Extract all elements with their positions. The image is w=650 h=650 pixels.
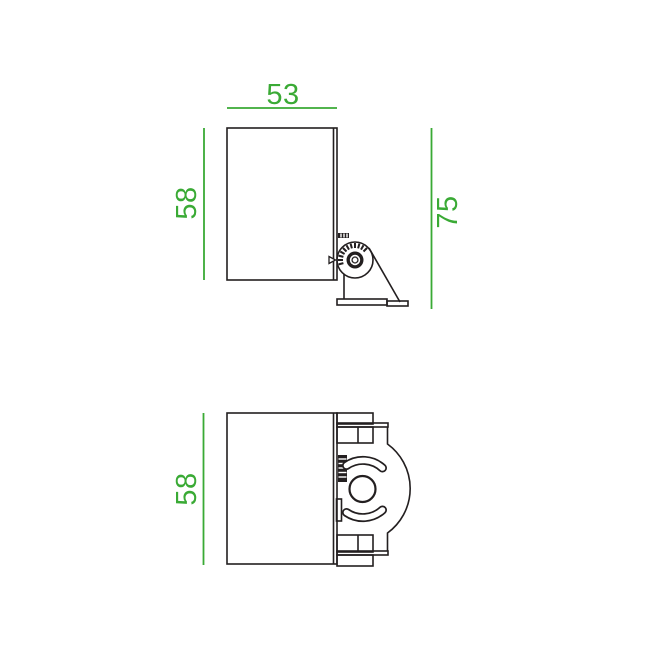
base-plate (337, 299, 387, 305)
width-dimension-label: 53 (266, 79, 299, 111)
bottom-tab-lower (337, 555, 373, 566)
fixture-body-outline (227, 413, 337, 564)
technical-drawing-page: 53 58 75 (0, 0, 650, 650)
bracket-slant-edge (369, 248, 400, 302)
central-mounting-hole (350, 476, 376, 502)
overall-height-dimension-label: 75 (432, 195, 464, 228)
fixture-body-side (227, 128, 337, 280)
side-slot (337, 499, 342, 521)
top-view: 58 (171, 413, 410, 566)
bracket-plate-bulge (388, 427, 411, 551)
dial-pointer-arrow-icon (329, 257, 336, 264)
body-height-dimension-label: 58 (171, 186, 203, 219)
top-tab-lower (337, 427, 373, 443)
depth-dimension-label: 58 (171, 472, 203, 505)
lower-adjustment-slot (347, 510, 383, 518)
bottom-tab-upper (337, 535, 373, 552)
base-foot (387, 301, 408, 306)
fixture-body-outline (227, 128, 337, 280)
upper-adjustment-slot (347, 460, 383, 468)
dimension-drawing-canvas: 53 58 75 (0, 0, 650, 650)
mounting-bracket-top (337, 413, 411, 566)
side-view: 53 58 75 (171, 79, 464, 309)
fixture-body-top (227, 413, 337, 564)
tilt-adjustment-dial (329, 242, 373, 278)
